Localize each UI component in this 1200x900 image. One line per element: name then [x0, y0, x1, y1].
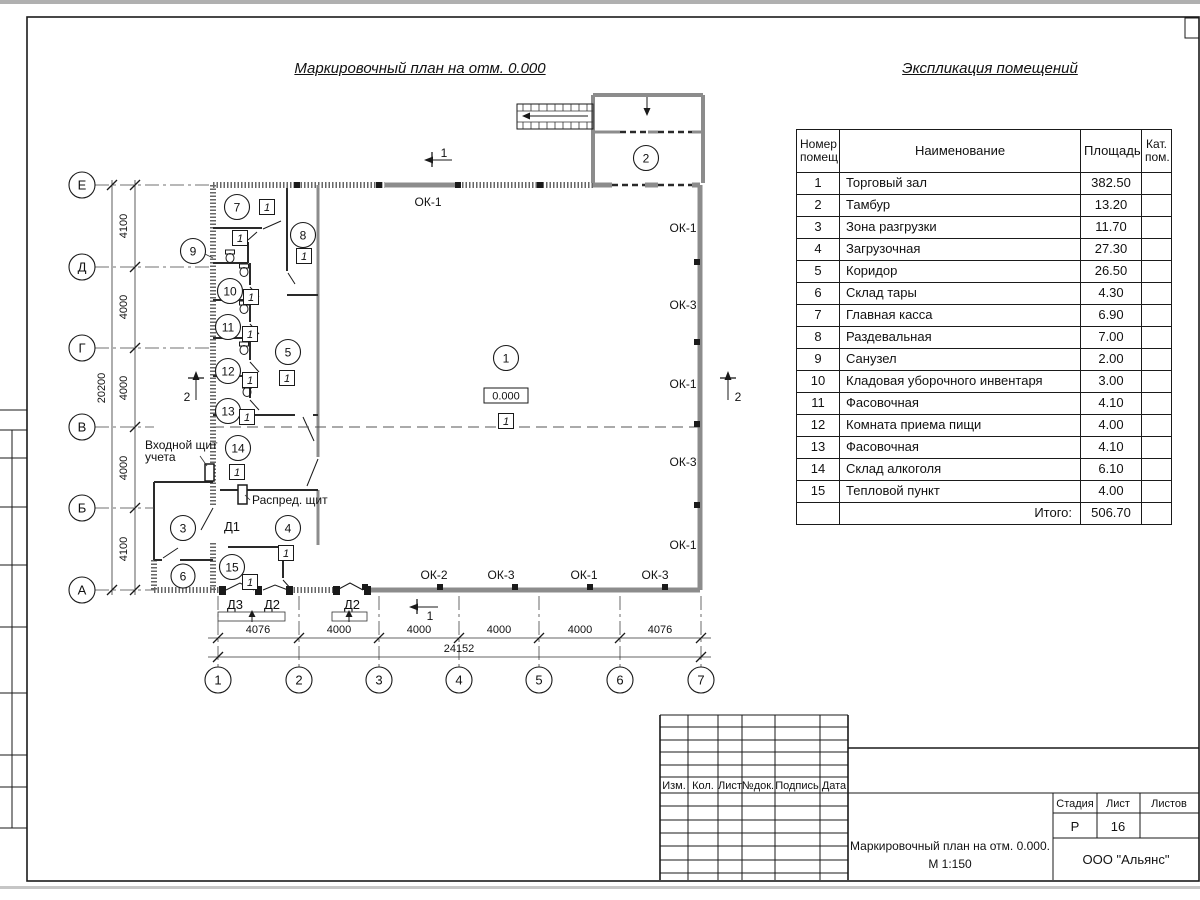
- axis-number: 7: [697, 673, 704, 688]
- toilet-icon: [226, 250, 235, 263]
- bottom-dimensions: 4076 4000 4000 4000 4000 4076 24152: [208, 624, 711, 662]
- explication-row: 15Тепловой пункт4.00: [797, 481, 1172, 503]
- axis-letter: А: [78, 583, 87, 598]
- stage-value: Р: [1071, 819, 1080, 834]
- room-number-10: 10: [223, 285, 237, 299]
- room-number-13: 13: [221, 405, 235, 419]
- tambour-walls: [593, 95, 703, 185]
- axis-number: 2: [295, 673, 302, 688]
- window-tag-top: ОК-1: [415, 195, 442, 209]
- room-number-12: 12: [221, 365, 235, 379]
- room-number-2: 2: [643, 152, 650, 166]
- dim-bottom-total: 24152: [444, 643, 475, 655]
- axis-number: 4: [455, 673, 462, 688]
- dim-left-0: 4100: [118, 214, 130, 238]
- window-tag-right: ОК-3: [670, 298, 697, 312]
- section-arrow-icon: [193, 371, 200, 380]
- window-tag-right: ОК-1: [670, 377, 697, 391]
- axis-letter: Г: [78, 341, 85, 356]
- total-label: Итого:: [840, 503, 1081, 525]
- dim-bottom-1: 4000: [327, 624, 351, 636]
- door-tag-d3: Д3: [227, 597, 243, 612]
- col-header-name: Наименование: [840, 130, 1081, 173]
- floor-type-markers: 1 1 1 1 1 1 1 1 1 1 1 1: [230, 200, 514, 590]
- floor-marker: 1: [264, 202, 270, 214]
- explication-row: 14Склад алкоголя6.10: [797, 459, 1172, 481]
- sheet-label: Лист: [1106, 798, 1130, 810]
- section-label-1: 1: [441, 146, 448, 160]
- explication-row: 7Главная касса6.90: [797, 305, 1172, 327]
- floor-marker: 1: [237, 233, 243, 245]
- stage-label: Стадия: [1056, 798, 1094, 810]
- left-dimensions: 4100 4000 4000 4000 4100 20200: [96, 180, 140, 595]
- title-block: Изм. Кол. Лист №док. Подпись Дата Стадия…: [660, 715, 1199, 880]
- explication-table: Номер помещ. Наименование Площадь Кат. п…: [796, 129, 1172, 525]
- toilet-icon: [240, 342, 249, 355]
- floor-marker: 1: [244, 412, 250, 424]
- doc-title-line2: М 1:150: [928, 857, 972, 871]
- dim-left-3: 4000: [118, 456, 130, 480]
- window-tag-bottom: ОК-2: [421, 568, 448, 582]
- dim-left-2: 4000: [118, 376, 130, 400]
- section-arrow-icon: [424, 157, 433, 164]
- room-number-11: 11: [222, 321, 235, 335]
- entry-panel-label2: учета: [145, 450, 176, 464]
- axis-number: 6: [616, 673, 623, 688]
- room-number-1: 1: [503, 352, 510, 366]
- dist-panel-symbol: [238, 485, 247, 504]
- dim-bottom-5: 4076: [648, 624, 672, 636]
- room-number-5: 5: [285, 346, 292, 360]
- drawing-sheet: Входной щит учета Распред. щит: [0, 0, 1200, 900]
- explication-row: 10Кладовая уборочного инвентаря3.00: [797, 371, 1172, 393]
- section-label-2: 2: [184, 390, 191, 404]
- room-number-7: 7: [234, 201, 241, 215]
- elevation-mark: 0.000: [484, 388, 528, 403]
- titleblock-col-podpis: Подпись: [775, 780, 819, 792]
- explication-row: 6Склад тары4.30: [797, 283, 1172, 305]
- room-number-9: 9: [190, 245, 197, 259]
- entry-panel-symbol: [205, 464, 214, 481]
- dim-left-1: 4000: [118, 295, 130, 319]
- window-tags: ОК-1 ОК-1 ОК-3 ОК-1 ОК-3 ОК-1 ОК-2 ОК-3 …: [415, 195, 697, 582]
- axis-number: 1: [214, 673, 221, 688]
- door-tag-d1: Д1: [224, 519, 240, 534]
- axis-number: 5: [535, 673, 542, 688]
- section-label-1: 1: [427, 609, 434, 623]
- window-marks: [294, 182, 700, 590]
- floor-marker: 1: [248, 292, 254, 304]
- axis-letter: Б: [78, 501, 87, 516]
- titleblock-col-list: Лист: [718, 780, 742, 792]
- explication-total-row: Итого: 506.70: [797, 503, 1172, 525]
- axis-letter: В: [78, 420, 87, 435]
- col-header-area: Площадь: [1081, 130, 1142, 173]
- corner-stamp-box: [1185, 18, 1199, 38]
- sheets-label: Листов: [1151, 798, 1187, 810]
- explication-row: 4Загрузочная27.30: [797, 239, 1172, 261]
- titleblock-col-izm: Изм.: [662, 780, 686, 792]
- door-tag-d2: Д2: [344, 597, 360, 612]
- dim-bottom-2: 4000: [407, 624, 431, 636]
- dist-panel-label: Распред. щит: [252, 493, 328, 507]
- elevation-value: 0.000: [492, 391, 520, 403]
- window-tag-bottom: ОК-1: [571, 568, 598, 582]
- room-number-bubbles: 1 2 3 4 5 6 7 8 9 10 11 12 13 14 15: [171, 146, 659, 589]
- door-tag-d2: Д2: [264, 597, 280, 612]
- total-value: 506.70: [1081, 503, 1142, 525]
- axis-number: 3: [375, 673, 382, 688]
- window-tag-right: ОК-1: [670, 221, 697, 235]
- section-label-2: 2: [735, 390, 742, 404]
- floor-marker: 1: [247, 577, 253, 589]
- room-number-4: 4: [285, 522, 292, 536]
- section-marks: 1 1 2 2: [184, 146, 742, 623]
- dim-left-4: 4100: [118, 537, 130, 561]
- porch-arrow-icon: [249, 610, 256, 617]
- window-tag-bottom: ОК-3: [642, 568, 669, 582]
- explication-header-row: Номер помещ. Наименование Площадь Кат. п…: [797, 130, 1172, 173]
- explication-row: 2Тамбур13.20: [797, 195, 1172, 217]
- window-tag-bottom: ОК-3: [488, 568, 515, 582]
- exterior-walls: [365, 185, 700, 590]
- explication-row: 3Зона разгрузки11.70: [797, 217, 1172, 239]
- window-tag-right: ОК-1: [670, 538, 697, 552]
- ramp-arrow-icon: [522, 113, 530, 120]
- axis-letter: Е: [78, 178, 87, 193]
- explication-row: 12Комната приема пищи4.00: [797, 415, 1172, 437]
- axis-letter: Д: [78, 260, 87, 275]
- titleblock-col-kol: Кол.: [692, 780, 714, 792]
- explication-title: Экспликация помещений: [850, 60, 1130, 77]
- room-number-8: 8: [300, 229, 307, 243]
- plan-title: Маркировочный план на отм. 0.000: [220, 60, 620, 77]
- titleblock-col-data: Дата: [822, 780, 847, 792]
- floor-marker: 1: [234, 467, 240, 479]
- explication-row: 11Фасовочная4.10: [797, 393, 1172, 415]
- floor-marker: 1: [283, 548, 289, 560]
- section-arrow-icon: [409, 604, 418, 611]
- loading-ramp: [517, 104, 593, 129]
- axis-number-bubbles: 1 2 3 4 5 6 7: [205, 667, 714, 693]
- floor-marker: 1: [301, 251, 307, 263]
- dim-left-total: 20200: [96, 373, 108, 404]
- explication-row: 13Фасовочная4.10: [797, 437, 1172, 459]
- axis-letter-bubbles: Е Д Г В Б А: [69, 172, 95, 603]
- room-number-14: 14: [231, 442, 245, 456]
- floor-marker: 1: [284, 373, 290, 385]
- col-header-cat: Кат. пом.: [1142, 130, 1172, 173]
- doc-title-line1: Маркировочный план на отм. 0.000.: [850, 839, 1050, 853]
- floor-marker: 1: [247, 375, 253, 387]
- frame-margin-table: [0, 410, 27, 828]
- floor-marker: 1: [503, 416, 509, 428]
- floor-marker: 1: [247, 329, 253, 341]
- col-header-num: Номер помещ.: [797, 130, 840, 173]
- dim-bottom-0: 4076: [246, 624, 270, 636]
- titleblock-col-doc: №док.: [742, 780, 774, 792]
- sheet-value: 16: [1111, 819, 1125, 834]
- dim-bottom-3: 4000: [487, 624, 511, 636]
- room-number-15: 15: [225, 561, 239, 575]
- explication-row: 8Раздевальная7.00: [797, 327, 1172, 349]
- entrance-arrow-icon: [644, 108, 651, 116]
- window-tag-right: ОК-3: [670, 455, 697, 469]
- company-name: ООО "Альянс": [1083, 852, 1170, 867]
- dim-bottom-4: 4000: [568, 624, 592, 636]
- section-arrow-icon: [725, 371, 732, 380]
- room-number-6: 6: [180, 570, 187, 584]
- explication-row: 5Коридор26.50: [797, 261, 1172, 283]
- explication-row: 9Санузел2.00: [797, 349, 1172, 371]
- toilet-icon: [240, 264, 249, 277]
- room-number-3: 3: [180, 522, 187, 536]
- explication-row: 1Торговый зал382.50: [797, 173, 1172, 195]
